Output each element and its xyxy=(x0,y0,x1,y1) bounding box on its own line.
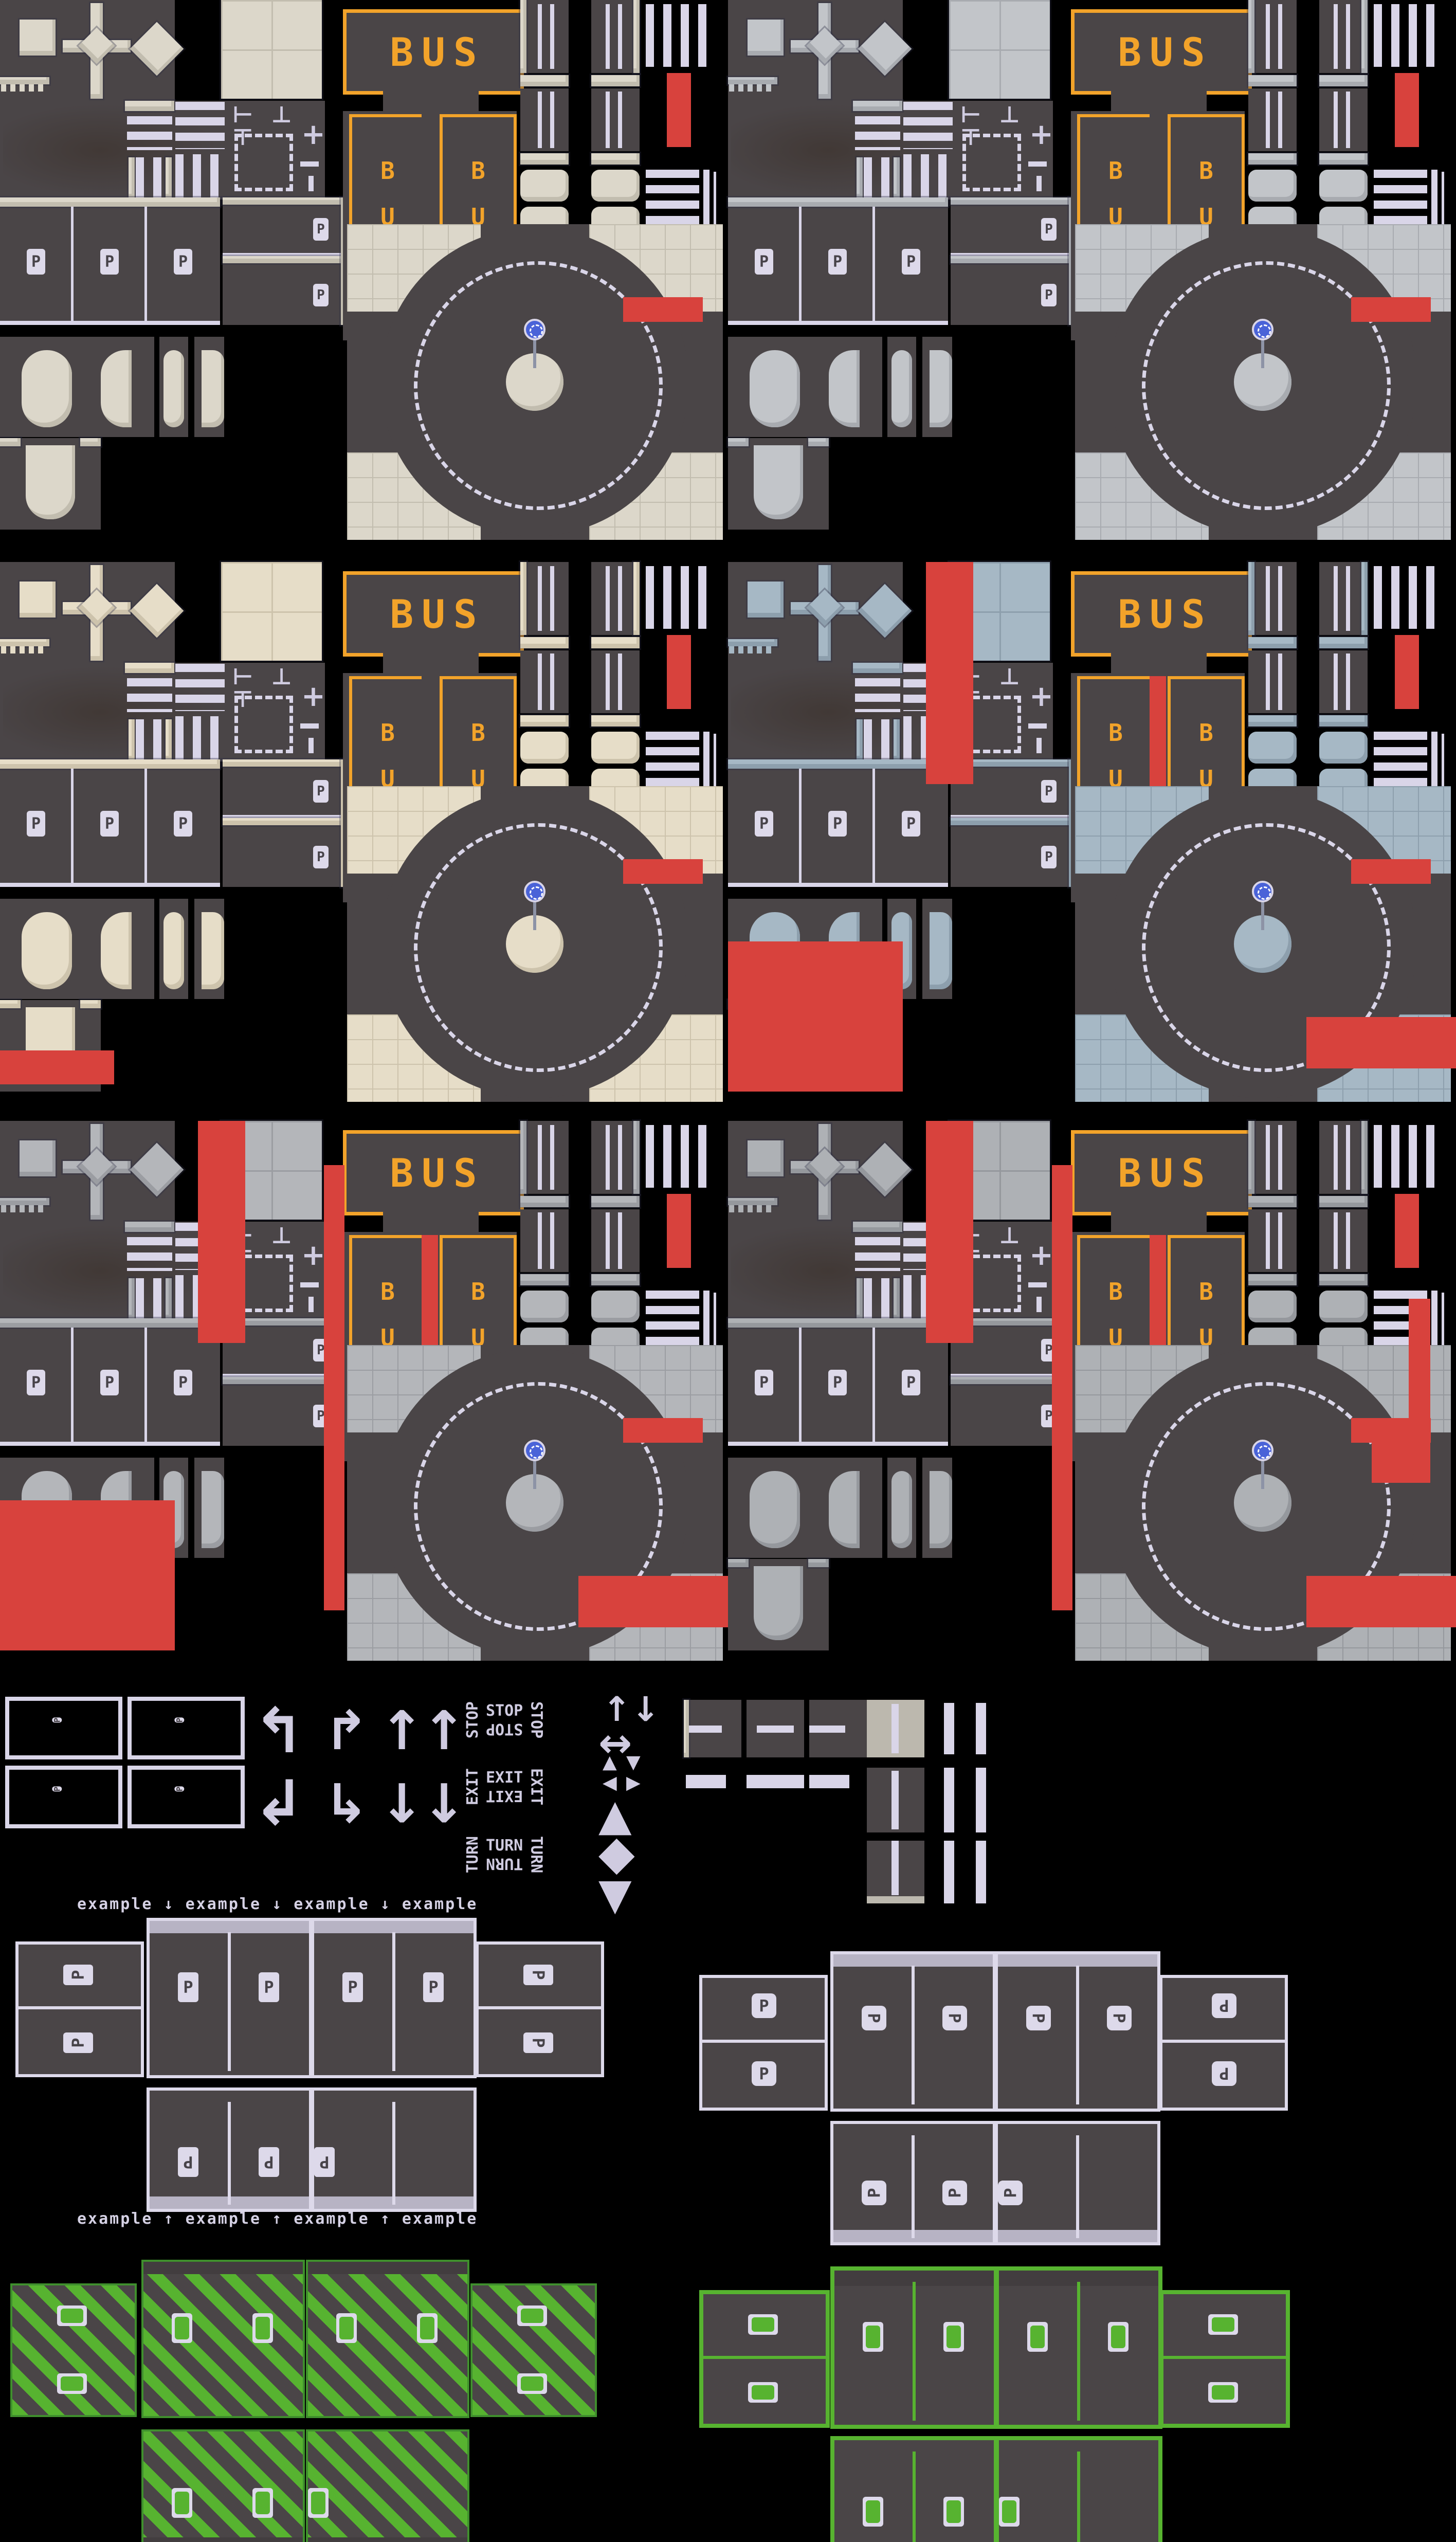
parking-p-label: P xyxy=(759,815,769,833)
curb-edge xyxy=(520,562,526,635)
parking-column-left: P P xyxy=(15,1941,144,2077)
lane-line xyxy=(550,1212,554,1269)
curb-edge xyxy=(520,0,526,73)
parking-p-label: P xyxy=(833,1374,842,1392)
ev-charging-icon xyxy=(521,2309,543,2323)
ev-charging-icon xyxy=(256,2492,270,2514)
parking-p-label: P xyxy=(174,1787,184,1792)
rounded-curb-tile xyxy=(520,170,569,202)
dash-marking xyxy=(809,1775,849,1788)
curb-cap xyxy=(591,637,640,648)
dash-marking xyxy=(944,1841,954,1903)
parking-sign: P xyxy=(998,2181,1023,2205)
lane-line-tile xyxy=(1248,1121,1297,1194)
lane-marking-tile xyxy=(747,1700,804,1757)
lane-line xyxy=(618,566,622,631)
lane-line xyxy=(618,653,622,710)
island-pill xyxy=(750,350,800,427)
red-marker-overlay xyxy=(623,297,703,322)
parking-lot: P P P xyxy=(0,197,220,325)
parking-sign: P xyxy=(172,2313,192,2343)
bus-station-sign: BUS xyxy=(1071,9,1252,95)
parking-sign: P xyxy=(336,2313,357,2343)
parking-sign: P xyxy=(178,2147,198,2177)
stall-divider xyxy=(71,1328,74,1442)
red-marker-overlay xyxy=(198,1121,245,1343)
parking-sign: P xyxy=(1108,2322,1129,2352)
tileset-block: ⊢ ⊥ ⊤ + P P P P P BUS B xyxy=(728,1121,1456,1666)
traffic-island-strip xyxy=(0,337,154,437)
lane-line xyxy=(1278,1212,1282,1269)
sidewalk-plaza xyxy=(221,562,322,661)
parking-p-label: P xyxy=(105,1374,114,1392)
curb-corner xyxy=(728,438,749,446)
parking-p-label: P xyxy=(906,253,916,271)
curb-cap xyxy=(1319,75,1368,86)
lane-line xyxy=(606,1125,610,1190)
asphalt-area: ⊢ ⊥ ⊤ + xyxy=(728,1222,1053,1320)
ev-charging-icon xyxy=(947,2500,961,2523)
parking-line xyxy=(0,321,220,325)
parking-p-label: P xyxy=(759,1374,769,1392)
stall-divider xyxy=(912,2135,915,2238)
parking-p-label: P xyxy=(1219,1996,1229,2016)
rounded-curb-tile xyxy=(1248,732,1297,764)
parking-lot: P P P xyxy=(728,1318,948,1446)
stall-divider xyxy=(71,207,74,321)
lane-line xyxy=(1334,92,1338,148)
example-heading-down: example ↓ example ↓ example ↓ example xyxy=(77,1895,478,1913)
parking-sign: P xyxy=(259,1972,279,2002)
crosswalk-vertical xyxy=(864,1278,893,1319)
parking-example-group: P P P P P P P P P P P P xyxy=(10,2260,596,2542)
stall-divider xyxy=(872,1328,875,1442)
bus-station-sign: BUS xyxy=(343,1130,524,1215)
parking-sign: P xyxy=(52,1718,62,1723)
parking-column-right: P P xyxy=(1159,2290,1290,2428)
uturn-left-down-arrow-icon: ↲ xyxy=(253,1773,305,1835)
parking-p-label: P xyxy=(68,2038,88,2047)
cross-marking-center xyxy=(807,28,843,64)
parking-p-label: P xyxy=(759,253,769,271)
curb-cap xyxy=(1248,153,1297,165)
parking-sign: P xyxy=(943,2322,964,2352)
parking-example-group: P P P P P P P P P P P P xyxy=(699,1951,1285,2239)
sidewalk-tile xyxy=(748,1140,784,1176)
lane-line xyxy=(550,92,554,148)
plus-marking: + xyxy=(1029,682,1053,711)
yield-triangle-down-icon: ▼ xyxy=(598,1873,632,1916)
lane-line xyxy=(1278,1125,1282,1190)
asphalt-area xyxy=(728,1121,903,1222)
exit-text-vertical: EXIT xyxy=(465,1768,481,1805)
stall-divider xyxy=(913,2452,916,2542)
ev-charging-icon xyxy=(61,2309,83,2323)
stall-divider xyxy=(872,769,875,883)
curb-strip xyxy=(0,1198,49,1205)
lane-line-tile xyxy=(591,1121,640,1194)
parking-sign: P xyxy=(27,249,45,275)
crosswalk-vertical xyxy=(136,1278,165,1319)
parking-column-right: P P xyxy=(1159,1975,1288,2111)
curb-cap xyxy=(591,153,640,165)
stall-divider xyxy=(702,2040,825,2043)
dash-marking xyxy=(976,1841,986,1903)
dash-marking xyxy=(1028,723,1047,729)
stall-divider xyxy=(71,769,74,883)
parking-lot: P P P xyxy=(728,197,948,325)
curb-edge xyxy=(894,1278,900,1319)
turn-text-vertical: TURN xyxy=(528,1836,543,1873)
curb-corner xyxy=(80,1000,101,1008)
island-pill-half xyxy=(202,912,224,989)
cross-marking-center xyxy=(807,590,843,626)
parking-lot-top: P P xyxy=(147,1918,312,2078)
parking-sign: P xyxy=(1041,780,1057,803)
traffic-island-strip xyxy=(728,1458,882,1558)
bus-station-connector xyxy=(383,649,479,673)
red-marker-overlay xyxy=(0,1500,175,1650)
dashed-box-marking xyxy=(234,696,293,753)
parking-sign: P xyxy=(313,284,329,306)
lane-line xyxy=(618,1212,622,1269)
roundabout-sign-arrows xyxy=(1258,1445,1271,1459)
curb-teeth xyxy=(1,646,47,653)
crosswalk-vertical xyxy=(136,719,165,760)
lane-line xyxy=(1334,653,1338,710)
dash-marking xyxy=(308,1297,314,1312)
parking-sign: P xyxy=(755,811,773,837)
red-marker-overlay xyxy=(926,562,973,784)
lane-line-tile xyxy=(1319,0,1368,73)
dash-marking xyxy=(1036,176,1042,191)
red-marker-overlay xyxy=(1351,297,1431,322)
lane-line xyxy=(550,1125,554,1190)
bus-label: BUS xyxy=(1109,1150,1213,1196)
sidewalk-tile xyxy=(748,20,784,56)
curb-edge xyxy=(520,1121,526,1194)
crosswalk-vertical xyxy=(136,157,165,198)
sidewalk-plaza xyxy=(949,0,1050,99)
parking-p-label: P xyxy=(833,253,842,271)
lane-line-tile xyxy=(520,1209,569,1272)
traffic-island-strip xyxy=(887,1458,916,1558)
parking-lot-bottom: P P xyxy=(995,2436,1162,2542)
parking-p-label: P xyxy=(31,815,41,833)
traffic-island-strip xyxy=(194,1458,224,1558)
curb-cap xyxy=(1319,1274,1368,1285)
example-heading-up: example ↑ example ↑ example ↑ example xyxy=(77,2210,478,2228)
parking-sign: P xyxy=(342,1972,363,2002)
lane-line-tile xyxy=(520,88,569,151)
rounded-curb-tile xyxy=(1319,732,1368,764)
stall-divider xyxy=(144,769,147,883)
stall-divider xyxy=(913,2282,916,2421)
parking-sign: P xyxy=(313,218,329,241)
curb-edge xyxy=(129,157,135,198)
sidewalk-tile xyxy=(748,582,784,618)
red-marker-overlay xyxy=(1052,1165,1072,1610)
parking-p-label: P xyxy=(1045,287,1053,303)
island-pill-half xyxy=(930,350,952,427)
lane-marking-tile xyxy=(684,1700,741,1757)
dashed-box-marking xyxy=(234,134,293,191)
cross-marking-center xyxy=(807,1149,843,1185)
curb-cap xyxy=(1248,637,1297,648)
traffic-island-tail xyxy=(728,1559,829,1650)
lane-marking-tile xyxy=(867,1700,924,1757)
parking-lot-top: P P xyxy=(830,2266,998,2429)
dash-marking xyxy=(300,1282,319,1287)
roundabout-sign-icon xyxy=(1252,1440,1273,1461)
curb-strip xyxy=(951,197,1072,205)
island-pill-half xyxy=(202,1471,224,1548)
lane-line xyxy=(1346,653,1350,710)
curb-edge xyxy=(1361,1121,1368,1194)
curb-strip xyxy=(143,2262,303,2274)
dash-marking xyxy=(976,1768,986,1832)
red-marker-overlay xyxy=(667,1194,691,1268)
parking-sign: P xyxy=(943,2497,964,2527)
roundabout-sign-arrows xyxy=(530,886,543,900)
dash-marking xyxy=(944,1703,954,1754)
ev-charging-icon xyxy=(61,2376,83,2391)
lane-line xyxy=(891,1841,899,1895)
parking-lot-bottom: P P xyxy=(147,2087,312,2212)
stall-divider xyxy=(144,207,147,321)
parking-sign: P xyxy=(178,1972,198,2002)
exit-text: EXIT xyxy=(486,1770,523,1786)
curb-edge xyxy=(684,1700,689,1757)
lane-line xyxy=(618,92,622,148)
parking-outline-box: P xyxy=(128,1766,245,1828)
parking-p-label: P xyxy=(68,1970,88,1980)
parking-sign: P xyxy=(902,811,920,837)
tileset-block: ⊢ ⊥ ⊤ + P P P P P BUS B xyxy=(728,562,1456,1107)
parking-p-label: P xyxy=(945,2188,964,2198)
crosswalk-cap xyxy=(853,663,902,673)
traffic-island-strip xyxy=(0,899,154,999)
parking-lot-bottom: P P xyxy=(311,2087,477,2212)
cross-marking-center xyxy=(79,28,115,64)
sidewalk-tile xyxy=(20,582,56,618)
bus-station-connector xyxy=(383,87,479,111)
island-pill xyxy=(750,1471,800,1548)
rounded-curb-tile xyxy=(1319,170,1368,202)
lane-line-tile xyxy=(1248,0,1297,73)
bus-station-sign: BUS xyxy=(1071,1130,1252,1215)
crosswalk-horizontal xyxy=(127,116,172,150)
ev-charging-icon xyxy=(1111,2326,1125,2348)
curb-strip xyxy=(998,1954,1157,1967)
curb-strip xyxy=(728,759,948,769)
diamond-island xyxy=(858,22,912,76)
island-pill-half xyxy=(930,912,952,989)
roundabout-sign-icon xyxy=(524,319,545,340)
parking-p-label: P xyxy=(52,1787,62,1792)
dash-marking xyxy=(300,723,319,729)
parking-sign: P xyxy=(755,249,773,275)
rounded-curb-tile xyxy=(520,732,569,764)
parking-sign: P xyxy=(313,846,329,868)
parking-sign: P xyxy=(902,1370,920,1395)
asphalt-area xyxy=(728,0,903,101)
roundabout-sign-icon xyxy=(524,1440,545,1461)
parking-sign: P xyxy=(755,1370,773,1395)
lane-line-tile xyxy=(1319,562,1368,635)
curb-cap xyxy=(1248,75,1297,86)
lane-marking-tile xyxy=(867,1841,924,1903)
parking-lot-bottom: P P xyxy=(830,2121,996,2245)
curb-cap xyxy=(1319,1196,1368,1207)
ev-charging-icon xyxy=(175,2317,189,2339)
lane-line xyxy=(606,566,610,631)
parking-lot-top: P P xyxy=(830,1951,996,2112)
lane-line xyxy=(550,566,554,631)
lane-line xyxy=(1278,566,1282,631)
parking-sign: P xyxy=(259,2147,279,2177)
ev-charging-icon xyxy=(752,2317,774,2332)
parking-line xyxy=(728,321,948,325)
parking-outline-box: P xyxy=(128,1697,245,1759)
plus-marking: + xyxy=(301,1241,325,1270)
parking-lot-side: P P xyxy=(951,197,1072,325)
stall-divider xyxy=(386,2443,389,2542)
parking-column-left: P P xyxy=(699,2290,830,2428)
diamond-island xyxy=(130,584,184,638)
parking-sign: P xyxy=(748,2382,778,2403)
roundabout-sign-arrows xyxy=(1258,324,1271,338)
exit-text-vertical: EXIT xyxy=(528,1768,543,1805)
asphalt-area xyxy=(0,562,175,663)
parking-lot: P P P xyxy=(0,1318,220,1446)
plus-marking: + xyxy=(1029,1241,1053,1270)
red-marker-overlay xyxy=(667,635,691,709)
curb-edge xyxy=(867,1896,924,1903)
red-marker-overlay xyxy=(324,1165,344,1610)
turn-right-down-arrow-icon: ↳ xyxy=(324,1777,369,1830)
parking-line xyxy=(728,1442,948,1446)
ev-charging-icon xyxy=(256,2317,270,2339)
stall-divider xyxy=(472,2347,595,2350)
parking-p-label: P xyxy=(317,287,325,303)
rounded-curb-tile xyxy=(591,170,640,202)
red-marker-overlay xyxy=(578,1576,728,1627)
dash-marking xyxy=(944,1768,954,1832)
rounded-curb-tile xyxy=(591,1291,640,1322)
lane-line-tile xyxy=(520,1121,569,1194)
lane-line xyxy=(550,4,554,69)
lane-line xyxy=(538,566,542,631)
dashed-box-marking xyxy=(962,134,1021,191)
curb-cap xyxy=(520,1196,569,1207)
parking-lot: P P P xyxy=(728,759,948,887)
curb-cap xyxy=(520,1274,569,1285)
lane-line xyxy=(606,1212,610,1269)
lane-line-tile xyxy=(1319,1209,1368,1272)
parking-sign: P xyxy=(27,811,45,837)
sidewalk-tile xyxy=(20,1140,56,1176)
parking-sign: P xyxy=(752,1993,776,2018)
crosswalk-ladder xyxy=(646,1125,713,1188)
lane-line-tile xyxy=(591,562,640,635)
curb-edge xyxy=(857,157,863,198)
curb-corner xyxy=(808,438,829,446)
stall-divider xyxy=(222,2273,225,2412)
bus-station-sign: BUS xyxy=(343,9,524,95)
lane-line-tile xyxy=(1248,1209,1297,1272)
red-marker-overlay xyxy=(1395,73,1419,147)
roundabout-sign-arrows xyxy=(530,324,543,338)
parking-p-label: P xyxy=(183,1977,193,1997)
parking-p-label: P xyxy=(183,2152,193,2172)
stop-text: STOP xyxy=(486,1703,523,1719)
tileset-block: ⊢ ⊥ ⊤ + P P P P P BUS B xyxy=(0,562,728,1107)
curb-cap xyxy=(1319,637,1368,648)
crosswalk-ladder xyxy=(1374,566,1441,629)
lane-line-tile xyxy=(1319,1121,1368,1194)
curb-strip xyxy=(0,1318,220,1328)
diamond-island xyxy=(858,584,912,638)
curb-edge xyxy=(857,1278,863,1319)
curb-cap xyxy=(1248,715,1297,727)
stall-divider xyxy=(1162,2040,1285,2043)
island-pill xyxy=(754,1566,803,1640)
roundabout xyxy=(347,786,723,1102)
roundabout-sign-icon xyxy=(1252,319,1273,340)
lane-line xyxy=(809,1726,845,1733)
lane-line xyxy=(1266,1125,1270,1190)
lane-line-tile xyxy=(591,650,640,713)
crosswalk-horizontal xyxy=(855,1237,900,1271)
parking-sign: P xyxy=(828,249,847,275)
curb-strip xyxy=(314,1921,474,1933)
red-marker-overlay xyxy=(926,1121,973,1343)
curb-cap xyxy=(520,75,569,86)
red-marker-overlay xyxy=(0,1050,114,1084)
parking-outline-box: P xyxy=(5,1766,122,1828)
turn-text-flipped: TURN xyxy=(486,1856,523,1871)
curb-edge xyxy=(166,1278,172,1319)
crosswalk-horizontal xyxy=(855,116,900,150)
parking-sign: P xyxy=(252,2313,273,2343)
ev-charging-icon xyxy=(311,2492,325,2514)
lane-line-tile xyxy=(591,88,640,151)
lane-line xyxy=(1346,566,1350,631)
curb-strip xyxy=(951,256,1072,263)
curb-strip xyxy=(308,2262,467,2274)
traffic-island-tail xyxy=(0,438,101,530)
rounded-curb-tile xyxy=(1248,170,1297,202)
island-pill xyxy=(22,350,72,427)
parking-sign: P xyxy=(57,2373,87,2394)
lane-line xyxy=(1334,1212,1338,1269)
parking-sign: P xyxy=(417,2313,438,2343)
stall-divider xyxy=(912,1966,915,2104)
dash-marking xyxy=(976,1703,986,1754)
parking-sign: P xyxy=(63,1965,93,1985)
exit-text-flipped: EXIT xyxy=(486,1788,523,1803)
bus-station-sign: BUS xyxy=(1071,571,1252,657)
roundabout-sign-icon xyxy=(524,881,545,902)
parking-sign: P xyxy=(100,1370,119,1395)
parking-p-label: P xyxy=(264,2152,274,2172)
lane-line xyxy=(1266,566,1270,631)
traffic-island-strip xyxy=(922,899,952,999)
bus-station-connector xyxy=(383,1208,479,1232)
parking-lot-top: P P xyxy=(306,2260,469,2418)
lane-line-tile xyxy=(591,0,640,73)
